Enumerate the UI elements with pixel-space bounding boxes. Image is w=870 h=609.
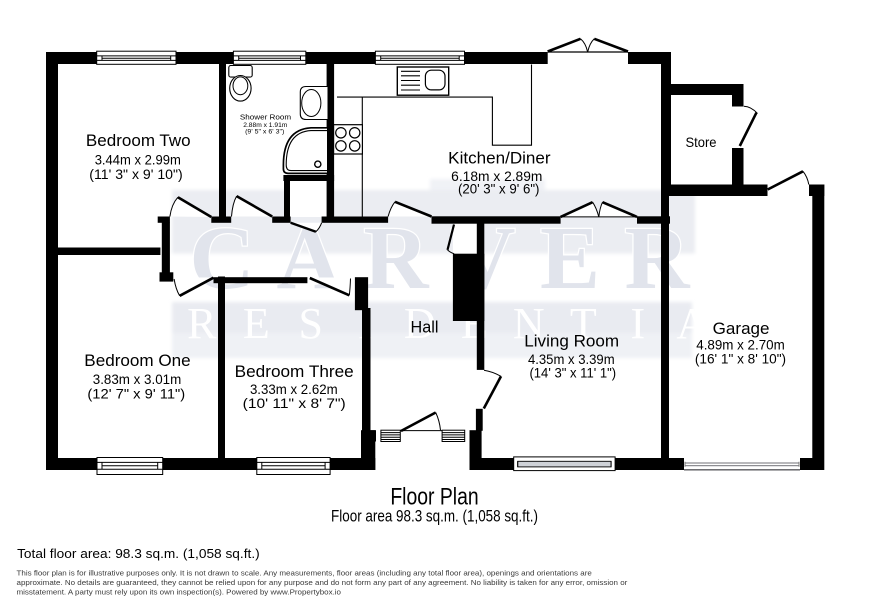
svg-text:(9' 5" x 6' 3"): (9' 5" x 6' 3") <box>245 129 284 136</box>
svg-text:Garage: Garage <box>713 320 770 338</box>
svg-text:I: I <box>630 299 645 348</box>
svg-text:approximate. No details are gu: approximate. No details are guaranteed, … <box>17 578 628 587</box>
svg-text:Shower Room: Shower Room <box>240 115 291 122</box>
svg-text:(12' 7" x 9' 11"): (12' 7" x 9' 11") <box>87 386 185 401</box>
svg-text:3.44m x 2.99m: 3.44m x 2.99m <box>95 152 181 167</box>
svg-text:Floor area 98.3 sq.m. (1,058 s: Floor area 98.3 sq.m. (1,058 sq.ft.) <box>331 506 538 525</box>
svg-text:(10' 11" x 8' 7"): (10' 11" x 8' 7") <box>243 396 346 411</box>
svg-text:Store: Store <box>686 134 717 150</box>
svg-text:R: R <box>187 299 217 348</box>
svg-text:R: R <box>364 209 430 308</box>
svg-text:misstatement. A party must rel: misstatement. A party must rely upon its… <box>17 587 342 596</box>
svg-text:E: E <box>540 209 600 308</box>
svg-text:R: R <box>625 209 691 308</box>
svg-text:3.33m x 2.62m: 3.33m x 2.62m <box>250 382 338 397</box>
svg-text:3.83m x 3.01m: 3.83m x 3.01m <box>93 372 182 387</box>
svg-text:Bedroom Three: Bedroom Three <box>235 363 354 381</box>
svg-text:Kitchen/Diner: Kitchen/Diner <box>448 150 551 168</box>
svg-text:S: S <box>299 299 323 348</box>
svg-text:Bedroom Two: Bedroom Two <box>86 132 191 150</box>
svg-text:(20' 3" x 9' 6"): (20' 3" x 9' 6") <box>458 181 540 196</box>
svg-text:4.89m x 2.70m: 4.89m x 2.70m <box>696 338 785 353</box>
svg-text:This floor plan is for illustr: This floor plan is for illustrative purp… <box>17 569 592 578</box>
svg-text:(16' 1" x 8' 10"): (16' 1" x 8' 10") <box>695 352 786 367</box>
svg-text:Total floor area: 98.3 sq.m. (: Total floor area: 98.3 sq.m. (1,058 sq.f… <box>17 546 260 561</box>
svg-text:(11' 3" x 9' 10"): (11' 3" x 9' 10") <box>89 167 182 182</box>
svg-text:Bedroom One: Bedroom One <box>84 352 190 370</box>
svg-text:E: E <box>243 299 270 348</box>
svg-text:(14' 3" x 11' 1"): (14' 3" x 11' 1") <box>529 365 616 380</box>
svg-text:Hall: Hall <box>411 319 439 337</box>
svg-text:Living Room: Living Room <box>524 332 619 350</box>
